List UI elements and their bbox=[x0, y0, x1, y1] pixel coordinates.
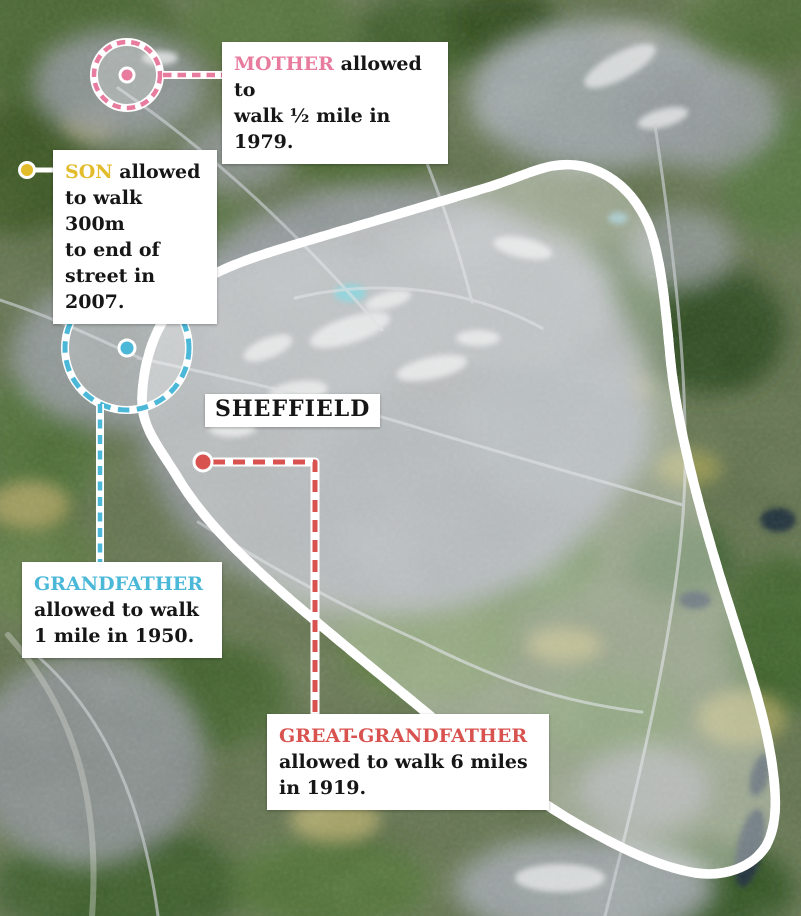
son-label: SON allowed to walk 300m to end of stree… bbox=[53, 150, 217, 324]
son-text: allowed to walk 300m to end of street in… bbox=[65, 161, 200, 313]
grandfather-marker-dot bbox=[119, 340, 135, 356]
great-grandfather-name: GREAT-GRANDFATHER bbox=[279, 725, 527, 747]
great-grandfather-text: allowed to walk 6 miles in 1919. bbox=[279, 751, 528, 799]
mother-name: MOTHER bbox=[234, 53, 334, 75]
son-marker-dot bbox=[20, 163, 35, 178]
grandfather-label: GRANDFATHER allowed to walk 1 mile in 19… bbox=[22, 562, 222, 658]
mother-marker-dot bbox=[120, 68, 134, 82]
grandfather-name: GRANDFATHER bbox=[34, 573, 203, 595]
great-grandfather-marker-dot bbox=[194, 453, 212, 471]
roam-map-infographic: MOTHER allowed to walk ½ mile in 1979. S… bbox=[0, 0, 801, 916]
sheffield-label: SHEFFIELD bbox=[205, 394, 380, 427]
sheffield-text: SHEFFIELD bbox=[215, 396, 370, 422]
grandfather-text: allowed to walk 1 mile in 1950. bbox=[34, 599, 199, 647]
great-grandfather-label: GREAT-GRANDFATHER allowed to walk 6 mile… bbox=[267, 714, 549, 810]
mother-label: MOTHER allowed to walk ½ mile in 1979. bbox=[222, 42, 448, 164]
son-name: SON bbox=[65, 161, 113, 183]
